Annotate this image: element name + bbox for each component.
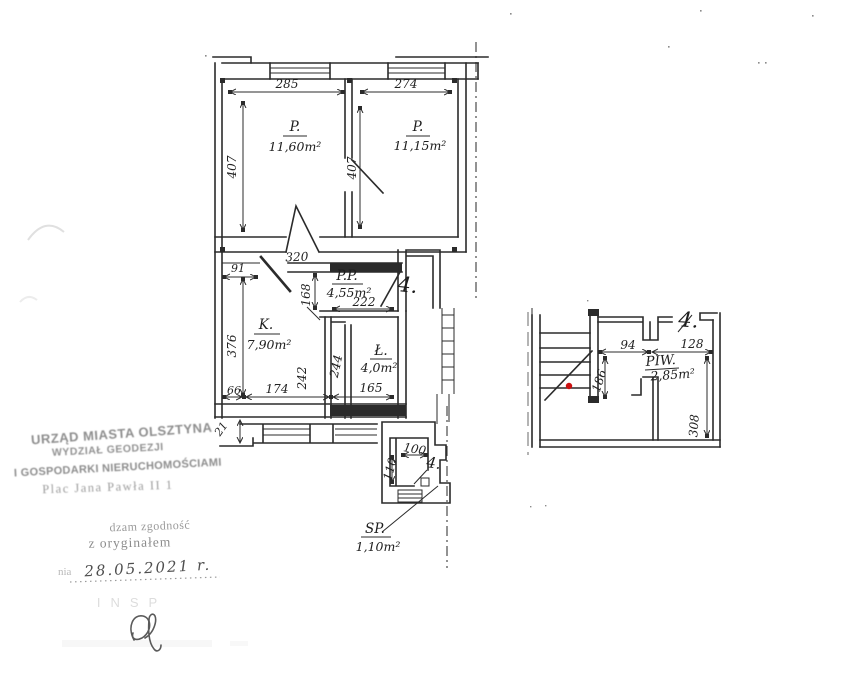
dimension-label: 186 <box>589 367 610 393</box>
handwritten-date: 28.05.2021 r. <box>83 556 212 581</box>
room-area-label: 2,85m² <box>649 365 696 383</box>
dimension-label: 308 <box>686 413 702 437</box>
dimension-label: 21 <box>211 420 230 440</box>
dimension-label: 66 <box>227 384 241 397</box>
certification-fragment-1: dzam zgodność <box>109 518 190 535</box>
dimension-label: 285 <box>275 77 299 91</box>
room-name-label: P. <box>412 119 424 135</box>
dimension-label: 407 <box>225 155 239 179</box>
dimension-label: 274 <box>394 77 418 91</box>
boundary-lines <box>447 42 528 568</box>
dimension-label: 94 <box>620 338 635 352</box>
room-name-label: Ł. <box>373 343 387 359</box>
dimension-label: 110 <box>380 456 400 482</box>
dimension-label: 174 <box>266 382 289 396</box>
faint-title-row: INSP <box>97 595 167 610</box>
dimension-label: 168 <box>299 283 313 306</box>
room-area-label: 7,90m² <box>247 337 292 352</box>
room-area-label: 1,10m² <box>356 539 401 554</box>
room-area-label: 4,0m² <box>360 360 398 375</box>
room-area-label: 11,60m² <box>269 139 322 154</box>
dimension-label: 244 <box>327 354 346 380</box>
unit-number-label: 4. <box>677 307 700 332</box>
red-survey-dot <box>566 383 572 389</box>
room-name-label: K. <box>258 317 273 333</box>
dimension-label: 376 <box>225 334 239 357</box>
unit-number-label: 4. <box>396 272 419 298</box>
dimension-label: 407 <box>345 156 359 180</box>
dimension-label: 222 <box>352 295 376 309</box>
dimension-label: 91 <box>231 262 245 275</box>
dimension-label: 165 <box>360 381 383 395</box>
middle-floor-plan: 320 91 P.P. 4,55m² 4. 168 222 376 K. 7,9… <box>211 250 454 446</box>
room-area-label: 11,15m² <box>394 138 447 153</box>
basement-plan: 94 128 4. 186 PIW. 2,85m² 308 <box>532 307 720 447</box>
floorplan-drawing: 285 274 407 407 P. 11,60m² P. 11,15m² <box>0 0 851 687</box>
dimension-label: 128 <box>681 337 704 351</box>
room-name-label: SP. <box>365 521 385 537</box>
annex-plan: 100 110 4. SP. 1,10m² <box>356 422 450 554</box>
scanned-floorplan-document: 285 274 407 407 P. 11,60m² P. 11,15m² <box>0 0 851 687</box>
certification-fragment-2: z oryginałem <box>88 534 171 550</box>
dimension-label: 320 <box>285 250 309 265</box>
stamp-line-4: Plac Jana Pawła II 1 <box>42 478 174 497</box>
office-stamp: URZĄD MIASTA OLSZTYNA WYDZIAŁ GEODEZJI I… <box>14 420 222 497</box>
dimension-label: 242 <box>295 367 309 391</box>
stamp-line-3: I GOSPODARKI NIERUCHOMOŚCIAMI <box>14 456 222 480</box>
room-name-label: P. <box>289 119 301 135</box>
certification-note: dzam zgodność z oryginałem nia 28.05.202… <box>58 518 220 651</box>
date-prefix: nia <box>58 566 72 578</box>
room-name-label: P.P. <box>335 268 357 284</box>
